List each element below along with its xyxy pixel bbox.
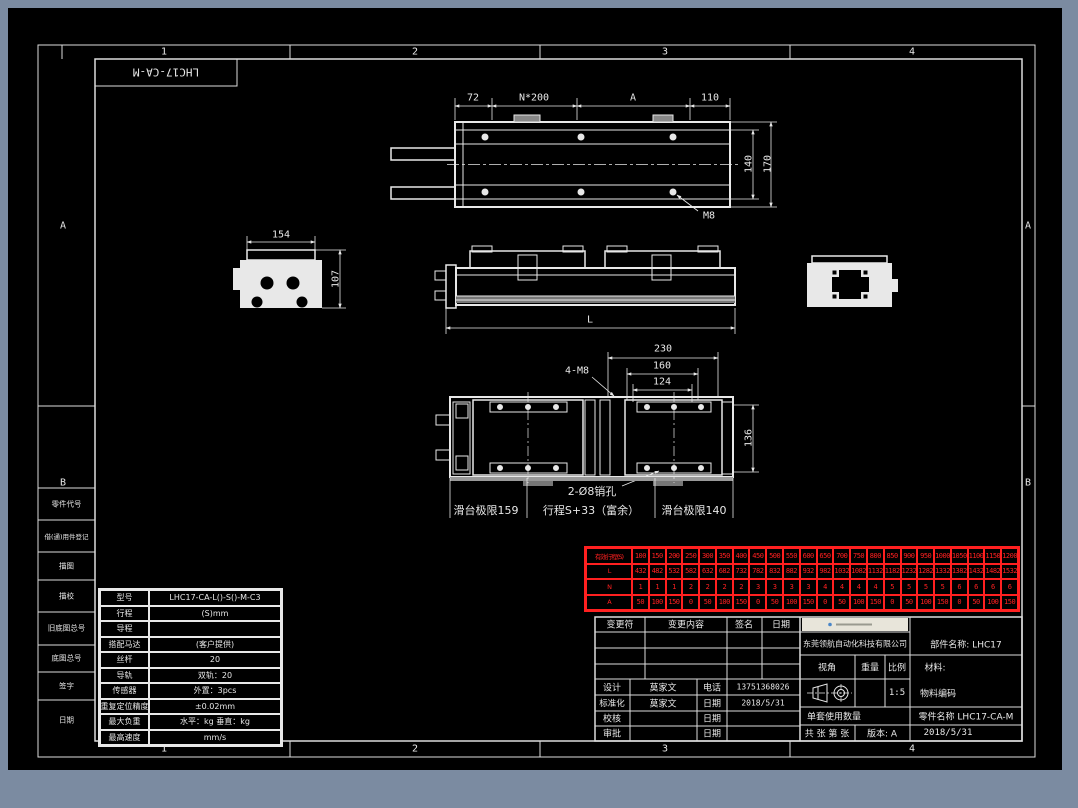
zone-col-4: 4 — [909, 47, 915, 58]
stroke-table-cell: 1332 — [934, 564, 951, 580]
stroke-table-cell: 900 — [901, 548, 918, 564]
stroke-table-cell: 582 — [682, 564, 699, 580]
signoff-role-design: 设计 — [603, 681, 621, 694]
margin-block-date: 日期 — [38, 715, 95, 726]
spec-value: (客户提供) — [149, 637, 281, 653]
stroke-table-cell: 1282 — [917, 564, 934, 580]
stroke-table-cell: 50 — [766, 595, 783, 611]
stroke-table-cell: 1000 — [934, 548, 951, 564]
stroke-table-cell: 50 — [632, 595, 649, 611]
signoff-role-check: 校核 — [603, 712, 621, 725]
stroke-table-cell: 300 — [699, 548, 716, 564]
stroke-table-row-label: N — [586, 579, 632, 595]
stroke-table-row-label: A — [586, 595, 632, 611]
stroke-table-cell: 932 — [800, 564, 817, 580]
stroke-table-cell: 950 — [917, 548, 934, 564]
stroke-table-cell: 50 — [833, 595, 850, 611]
stroke-table-cell: 450 — [749, 548, 766, 564]
stroke-table-cell: 50 — [968, 595, 985, 611]
spec-value: mm/s — [149, 730, 281, 746]
sheet-count: 共 张 第 张 — [805, 727, 850, 740]
stroke-table-cell: 100 — [783, 595, 800, 611]
flipped-drawing-number: LHC17-CA-M — [133, 66, 199, 79]
stroke-table-cell: 100 — [716, 595, 733, 611]
stroke-table-cell: 0 — [951, 595, 968, 611]
top-view — [391, 98, 777, 211]
stroke-table-cell: 5 — [917, 579, 934, 595]
stroke-table-cell: 1132 — [867, 564, 884, 580]
spec-label: 传感器 — [100, 683, 149, 699]
stroke-table-cell: 850 — [884, 548, 901, 564]
stroke-table-cell: 50 — [901, 595, 918, 611]
change-content-header: 变更内容 — [668, 618, 704, 631]
stroke-table-cell: 4 — [850, 579, 867, 595]
left-end-view — [233, 236, 346, 308]
stroke-table-cell: 1 — [649, 579, 666, 595]
stroke-table-cell: 1082 — [850, 564, 867, 580]
stroke-table-cell: 0 — [884, 595, 901, 611]
margin-block-check: 描校 — [38, 591, 95, 602]
spec-value — [149, 621, 281, 637]
weight-label: 重量 — [861, 661, 879, 674]
stroke-table-cell: 1032 — [833, 564, 850, 580]
stroke-table-cell: 1 — [666, 579, 683, 595]
stroke-table-cell: 500 — [766, 548, 783, 564]
stroke-table-cell: 200 — [666, 548, 683, 564]
spec-label: 行程 — [100, 606, 149, 622]
change-date-header: 日期 — [772, 618, 790, 631]
stroke-table-cell: 0 — [749, 595, 766, 611]
stroke-table-cell: 2 — [699, 579, 716, 595]
stroke-table-cell: 150 — [800, 595, 817, 611]
stroke-table-cell: 1482 — [984, 564, 1001, 580]
stroke-table-cell: 150 — [867, 595, 884, 611]
margin-block-old-no: 旧底图总号 — [38, 623, 95, 634]
margin-block-part-code: 零件代号 — [38, 499, 95, 510]
scale-value: 1:5 — [889, 688, 905, 698]
part-name: 零件名称 LHC17-CA-M — [919, 710, 1014, 723]
stroke-table-cell: 150 — [733, 595, 750, 611]
stroke-table-cell: 3 — [800, 579, 817, 595]
zone-row-a-left: A — [60, 221, 66, 232]
stroke-table-cell: 1432 — [968, 564, 985, 580]
stroke-table-cell: 6 — [968, 579, 985, 595]
right-end-view — [807, 256, 898, 307]
spec-value: (S)mm — [149, 606, 281, 622]
stroke-table-cell: 882 — [783, 564, 800, 580]
signoff-field-date-3: 日期 — [703, 727, 721, 740]
zone-col-4b: 4 — [909, 744, 915, 755]
stroke-table-cell: 1232 — [901, 564, 918, 580]
stroke-table-cell: 5 — [884, 579, 901, 595]
zone-row-b-right: B — [1025, 478, 1031, 489]
stroke-table-cell: 150 — [666, 595, 683, 611]
stroke-table-cell: 100 — [649, 595, 666, 611]
stroke-table-cell: 0 — [682, 595, 699, 611]
stroke-table-cell: 432 — [632, 564, 649, 580]
stroke-table-cell: 50 — [699, 595, 716, 611]
stroke-table-cell: 2 — [716, 579, 733, 595]
stroke-table-cell: 800 — [867, 548, 884, 564]
dim-124: 124 — [653, 377, 671, 388]
zone-col-3: 3 — [662, 47, 668, 58]
stroke-table-cell: 1150 — [984, 548, 1001, 564]
stroke-table-cell: 550 — [783, 548, 800, 564]
version: 版本: A — [867, 727, 897, 740]
spec-label: 最大负重 — [100, 714, 149, 730]
stroke-table-cell: 532 — [666, 564, 683, 580]
stroke-table-cell: 0 — [817, 595, 834, 611]
spec-value: LHC17-CA-L()-S()-M-C3 — [149, 590, 281, 606]
dim-136: 136 — [744, 429, 755, 447]
zone-row-a-right: A — [1025, 221, 1031, 232]
stroke-table-cell: 6 — [1001, 579, 1018, 595]
release-date: 2018/5/31 — [924, 728, 973, 738]
spec-label: 重复定位精度 — [100, 699, 149, 715]
signoff-role-standard: 标准化 — [599, 697, 625, 709]
dim-160: 160 — [653, 361, 671, 372]
stroke-table-cell: 1382 — [951, 564, 968, 580]
stroke-table-cell: 5 — [901, 579, 918, 595]
stroke-table-cell: 650 — [817, 548, 834, 564]
stroke-table-cell: 2 — [733, 579, 750, 595]
spec-label: 导程 — [100, 621, 149, 637]
dim-a: A — [630, 93, 636, 104]
stroke-table-cell: 100 — [917, 595, 934, 611]
dim-154: 154 — [272, 230, 290, 241]
spec-label: 导轨 — [100, 668, 149, 684]
stroke-table-cell: 4 — [867, 579, 884, 595]
projection-symbol — [807, 684, 852, 702]
label-pin-holes: 2-Ø8销孔 — [568, 483, 617, 499]
dim-230: 230 — [654, 344, 672, 355]
stroke-table-cell: 150 — [649, 548, 666, 564]
label-limit-right: 滑台极限140 — [662, 502, 727, 518]
signoff-field-date-2: 日期 — [703, 712, 721, 725]
material-label: 材料: — [924, 661, 945, 674]
change-symbol-header: 变更符 — [606, 618, 633, 631]
stroke-table-cell: 2 — [682, 579, 699, 595]
stroke-table-cell: 150 — [1001, 595, 1018, 611]
margin-block-sign: 签字 — [38, 681, 95, 692]
qty-label: 单套使用数量 — [807, 710, 861, 723]
cad-viewer-canvas: 1 2 3 4 1 2 3 4 A B A B LHC17-CA-M 零件代号 … — [0, 0, 1078, 808]
spec-value: 20 — [149, 652, 281, 668]
spec-value: 外置：3pcs — [149, 683, 281, 699]
stroke-table-cell: 832 — [766, 564, 783, 580]
signoff-name-design: 莫家文 — [649, 681, 676, 694]
stroke-table-cell: 732 — [733, 564, 750, 580]
dim-l: L — [587, 315, 593, 326]
spec-label: 最高速度 — [100, 730, 149, 746]
stroke-table-cell: 4 — [817, 579, 834, 595]
signoff-name-standard: 莫家文 — [649, 697, 676, 710]
stroke-table-cell: 4 — [833, 579, 850, 595]
view-angle-label: 视角 — [818, 661, 836, 674]
stroke-table-cell: 100 — [984, 595, 1001, 611]
stroke-table-cell: 400 — [733, 548, 750, 564]
signoff-field-phone: 电话 — [703, 681, 721, 694]
spec-label: 丝杆 — [100, 652, 149, 668]
stroke-table-row-label: 有效行程(S) — [586, 548, 632, 564]
stroke-table-cell: 6 — [984, 579, 1001, 595]
stroke-length-table: 有效行程(S)100150200250300350400450500550600… — [584, 546, 1020, 612]
company-name: 东莞领航自动化科技有限公司 — [803, 639, 907, 650]
stroke-table-cell: 982 — [817, 564, 834, 580]
spec-table: 型号LHC17-CA-L()-S()-M-C3 行程(S)mm 导程 搭配马达(… — [98, 588, 283, 747]
scale-label: 比例 — [888, 661, 906, 674]
stroke-table-cell: 700 — [833, 548, 850, 564]
stroke-table-cell: 600 — [800, 548, 817, 564]
side-view — [435, 246, 735, 334]
stroke-table-cell: 150 — [934, 595, 951, 611]
assembly-name: 部件名称: LHC17 — [930, 638, 1001, 651]
stroke-table-cell: 1182 — [884, 564, 901, 580]
stroke-table-cell: 3 — [783, 579, 800, 595]
zone-col-1: 1 — [161, 47, 167, 58]
margin-block-borrow: 借(通)用件登记 — [38, 531, 95, 541]
zone-row-b-left: B — [60, 478, 66, 489]
signoff-field-date-1: 日期 — [703, 697, 721, 710]
stroke-table-row-label: L — [586, 564, 632, 580]
stroke-table-cell: 1532 — [1001, 564, 1018, 580]
stroke-table-cell: 100 — [850, 595, 867, 611]
signoff-role-approve: 审批 — [603, 727, 621, 740]
stroke-table-cell: 100 — [632, 548, 649, 564]
signoff-phone-value: 13751368026 — [737, 683, 790, 692]
material-code-label: 物料编码 — [920, 687, 956, 700]
stroke-table-cell: 1100 — [968, 548, 985, 564]
dim-72: 72 — [467, 93, 479, 104]
stroke-table-cell: 1050 — [951, 548, 968, 564]
stroke-table-cell: 3 — [749, 579, 766, 595]
stroke-table-cell: 750 — [850, 548, 867, 564]
dim-n200: N*200 — [519, 93, 549, 104]
margin-block-trace: 描图 — [38, 561, 95, 572]
spec-value: 双轨：20 — [149, 668, 281, 684]
dim-110: 110 — [701, 93, 719, 104]
zone-col-3b: 3 — [662, 744, 668, 755]
signoff-date-value-1: 2018/5/31 — [741, 699, 784, 708]
stroke-table-cell: 5 — [934, 579, 951, 595]
stroke-table-cell: 632 — [699, 564, 716, 580]
stroke-table-cell: 482 — [649, 564, 666, 580]
stroke-table-cell: 782 — [749, 564, 766, 580]
spec-value: 水平：kg 垂直：kg — [149, 714, 281, 730]
stroke-table-cell: 1200 — [1001, 548, 1018, 564]
label-limit-left: 滑台极限159 — [454, 502, 519, 518]
zone-col-2: 2 — [412, 47, 418, 58]
label-4-m8: 4-M8 — [565, 366, 589, 377]
dim-140: 140 — [744, 155, 755, 173]
change-sign-header: 签名 — [735, 618, 753, 631]
spec-value: ±0.02mm — [149, 699, 281, 715]
dim-170: 170 — [763, 155, 774, 173]
stroke-table-cell: 250 — [682, 548, 699, 564]
stroke-table-cell: 3 — [766, 579, 783, 595]
dim-107: 107 — [331, 270, 342, 288]
zone-col-2b: 2 — [412, 744, 418, 755]
label-stroke-margin: 行程S+33（富余） — [543, 502, 639, 518]
spec-label: 型号 — [100, 590, 149, 606]
stroke-table-cell: 682 — [716, 564, 733, 580]
spec-label: 搭配马达 — [100, 637, 149, 653]
label-m8: M8 — [703, 211, 715, 222]
stroke-table-cell: 1 — [632, 579, 649, 595]
stroke-table-cell: 350 — [716, 548, 733, 564]
margin-block-base-no: 底图总号 — [38, 653, 95, 664]
stroke-table-cell: 6 — [951, 579, 968, 595]
